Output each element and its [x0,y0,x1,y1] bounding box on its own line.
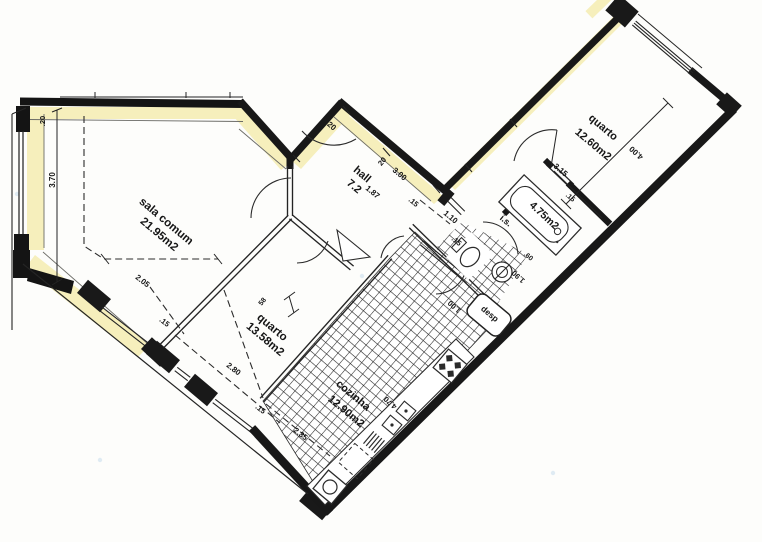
svg-text:3.70: 3.70 [48,172,57,188]
svg-text:.20: .20 [38,116,47,126]
